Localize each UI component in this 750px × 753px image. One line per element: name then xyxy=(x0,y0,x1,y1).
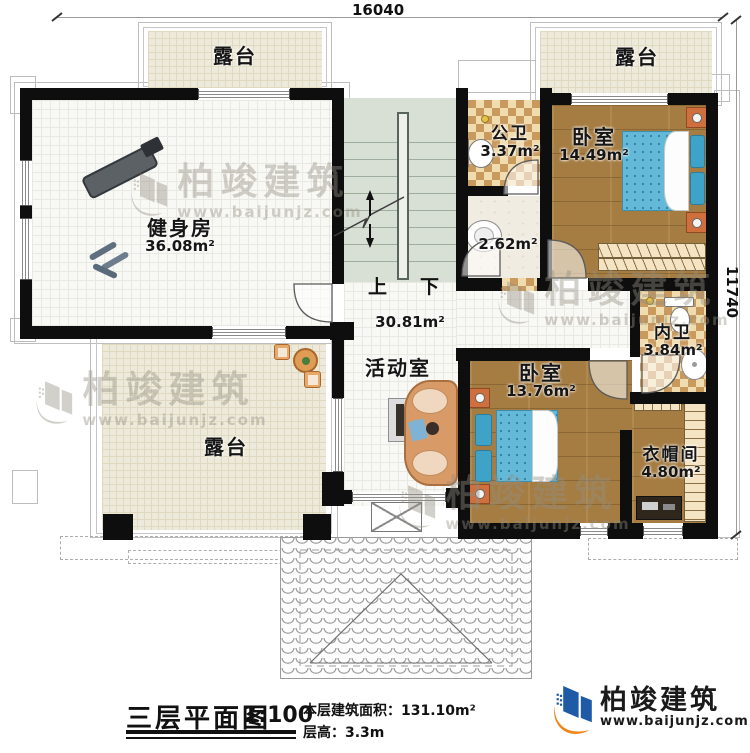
washroom-door-sill xyxy=(502,278,537,291)
gym-floor xyxy=(32,100,332,326)
drain xyxy=(692,362,697,367)
chair-seat xyxy=(278,348,287,357)
room-area: 4.80m² xyxy=(641,465,700,481)
window xyxy=(20,160,32,206)
pillow xyxy=(475,450,492,482)
floor-height-value: 3.3m xyxy=(345,725,384,741)
wall xyxy=(540,88,552,291)
wall xyxy=(620,430,632,523)
wall-post xyxy=(303,514,331,540)
label-terrace-top-left: 露台 xyxy=(213,46,257,67)
wall xyxy=(446,488,466,508)
brand-logo-icon xyxy=(550,681,594,735)
stair-down-label: 下 xyxy=(420,272,439,299)
nightstand-icon xyxy=(469,388,490,408)
toilet-tank xyxy=(664,297,694,307)
nightstand-icon xyxy=(686,107,707,128)
lamp-icon xyxy=(475,489,485,499)
terrace-chair-icon xyxy=(304,371,321,388)
eave-dashed-bottom-right xyxy=(588,538,738,560)
label-activity-area: 30.81m² xyxy=(375,315,445,331)
chair-seat xyxy=(308,375,318,385)
sliding-door xyxy=(212,327,286,337)
dumbbells-icon xyxy=(88,242,134,280)
floor-height-label: 层高： xyxy=(303,725,345,741)
sofa-cushion xyxy=(412,450,448,476)
brand-website: www.baijunjz.com xyxy=(600,714,749,729)
eave-box-left3 xyxy=(12,470,38,504)
wall xyxy=(20,326,212,339)
sliding-door xyxy=(198,89,290,99)
watermark-logo-icon xyxy=(32,375,74,425)
treadmill-icon xyxy=(80,136,166,208)
room-name: 露台 xyxy=(204,437,248,458)
wall xyxy=(608,523,632,539)
room-name: 露台 xyxy=(213,46,257,67)
bed-blanket xyxy=(532,410,558,482)
stair-rail xyxy=(397,112,409,280)
eave-top-middle xyxy=(458,60,536,93)
lamp-icon xyxy=(692,218,702,228)
wall xyxy=(20,206,32,218)
label-washroom: 2.62m² xyxy=(478,237,537,253)
sliding-door xyxy=(333,398,343,472)
desk-icon xyxy=(636,496,682,520)
plant-icon xyxy=(302,357,310,365)
label-gym: 健身房36.08m² xyxy=(145,218,215,255)
room-area: 30.81m² xyxy=(375,315,445,331)
window xyxy=(580,526,608,536)
wall xyxy=(322,490,352,504)
desk-item xyxy=(663,504,675,510)
lamp-icon xyxy=(475,393,485,403)
room-name: 卧室 xyxy=(506,363,576,384)
light-icon xyxy=(481,115,489,123)
pillow xyxy=(475,414,492,446)
wall xyxy=(540,278,551,291)
lamp-icon xyxy=(692,113,702,123)
room-name: 健身房 xyxy=(145,218,215,239)
roof-tiles xyxy=(280,537,532,679)
wall xyxy=(632,523,643,539)
floor-area-line: 本层建筑面积：131.10m² xyxy=(303,700,476,720)
wall xyxy=(20,88,198,100)
wall xyxy=(706,93,718,539)
desk-item xyxy=(642,502,658,510)
tv-screen xyxy=(396,404,404,436)
floor-area-value: 131.10m² xyxy=(401,703,476,719)
wall-post xyxy=(103,514,133,540)
light-icon xyxy=(646,297,654,305)
room-name: 露台 xyxy=(615,47,659,68)
wall xyxy=(458,523,580,539)
wall xyxy=(630,392,718,404)
bed-blanket xyxy=(664,131,689,211)
wall xyxy=(683,523,718,539)
corridor-floor xyxy=(456,290,632,348)
sliding-door xyxy=(571,94,668,104)
wall xyxy=(20,88,32,160)
terrace-table-icon xyxy=(293,348,318,373)
window xyxy=(643,526,683,536)
brand-logo: 柏竣建筑 www.baijunjz.com xyxy=(550,681,749,735)
wall xyxy=(588,278,718,291)
room-area: 36.08m² xyxy=(145,239,215,255)
wall xyxy=(460,186,508,196)
label-bedroom-top: 卧室14.49m² xyxy=(559,127,629,164)
wardrobe-icon xyxy=(598,243,706,271)
window xyxy=(20,218,32,280)
floor-plan: 16040 11740 xyxy=(0,0,750,753)
pillow xyxy=(690,135,705,168)
room-area: 3.37m² xyxy=(480,144,539,160)
label-cloakroom: 衣帽间4.80m² xyxy=(641,447,700,481)
label-inner-bath: 内卫3.84m² xyxy=(643,325,702,359)
label-public-bath: 公卫3.37m² xyxy=(480,126,539,160)
nightstand-icon xyxy=(469,484,490,504)
label-activity: 活动室 xyxy=(365,358,431,379)
window xyxy=(352,492,446,502)
room-area: 13.76m² xyxy=(506,384,576,400)
brand-name: 柏竣建筑 xyxy=(600,687,749,714)
terrace-chair-icon xyxy=(274,344,290,360)
room-name: 活动室 xyxy=(365,358,431,379)
label-terrace-top-right: 露台 xyxy=(615,47,659,68)
wardrobe-rail xyxy=(599,257,705,259)
nightstand-icon xyxy=(686,212,707,233)
floor-area-label: 本层建筑面积： xyxy=(303,703,401,719)
room-name: 卧室 xyxy=(559,127,629,148)
wall-post xyxy=(330,322,354,340)
pillow xyxy=(690,172,705,205)
shaft-hatch xyxy=(371,502,422,532)
wall xyxy=(456,278,502,291)
sofa-cushion xyxy=(412,388,448,414)
label-bedroom-bottom: 卧室13.76m² xyxy=(506,363,576,400)
title-underline xyxy=(126,730,296,734)
wall xyxy=(332,88,344,284)
wall xyxy=(630,291,640,357)
dimension-right: 11740 xyxy=(723,252,741,332)
room-area: 3.84m² xyxy=(643,343,702,359)
wall xyxy=(456,348,590,361)
floor-height-line: 层高：3.3m xyxy=(303,722,384,742)
title-underline-2 xyxy=(126,737,296,739)
wall xyxy=(540,93,571,105)
sofa-icon xyxy=(404,380,458,486)
wall xyxy=(456,88,468,280)
room-area: 14.49m² xyxy=(559,148,629,164)
label-terrace-bottom-left: 露台 xyxy=(204,437,248,458)
wall xyxy=(332,340,344,398)
room-area: 2.62m² xyxy=(478,237,537,253)
stair-up-label: 上 xyxy=(368,272,387,299)
person-icon xyxy=(426,422,439,435)
dimension-top: 16040 xyxy=(352,1,404,19)
